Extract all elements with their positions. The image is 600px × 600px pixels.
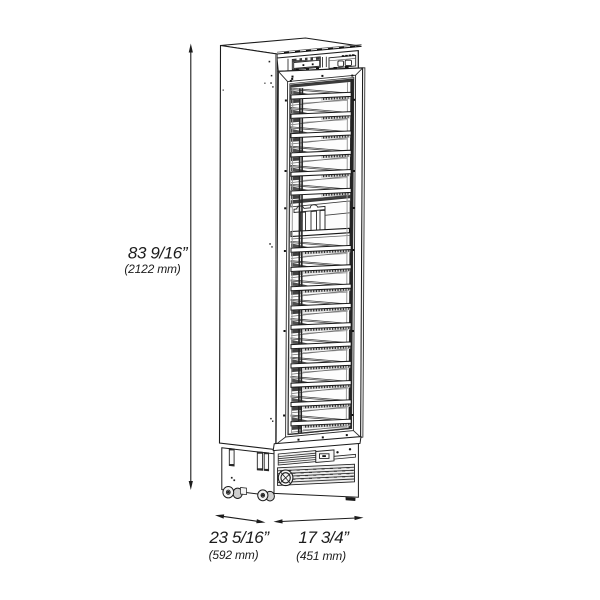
svg-text:(451 mm): (451 mm): [296, 549, 346, 563]
svg-text:83 9/16”: 83 9/16”: [128, 244, 189, 263]
svg-text:(2122 mm): (2122 mm): [124, 262, 180, 276]
svg-text:(592 mm): (592 mm): [209, 548, 259, 562]
svg-text:23 5/16”: 23 5/16”: [208, 528, 270, 547]
svg-text:17 3/4”: 17 3/4”: [298, 528, 350, 547]
